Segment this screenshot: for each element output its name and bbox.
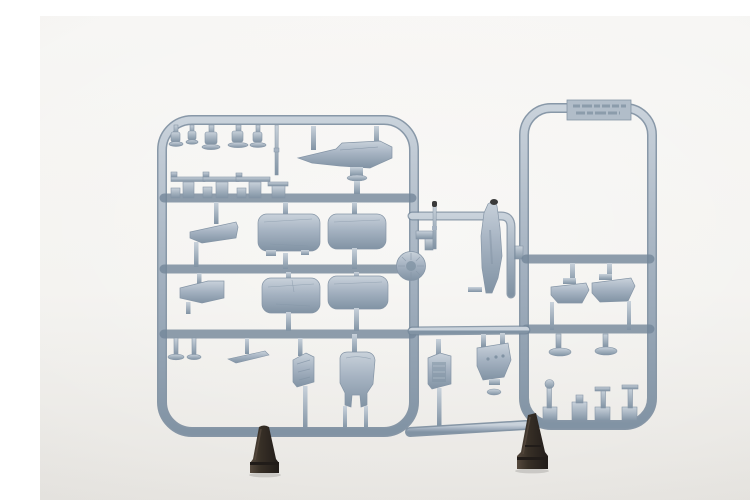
ball-post-part (543, 380, 557, 422)
nacelle-half-part (328, 272, 388, 331)
peg-part (228, 125, 248, 148)
parts-row1-small-pegs (169, 125, 266, 150)
nose-section-part (190, 202, 238, 267)
equipment-bay-part (428, 339, 451, 426)
t-post-part (622, 385, 638, 421)
wing-blade-part (228, 338, 269, 363)
nacelle-half-part (258, 202, 320, 269)
bottom-rail-parts (543, 380, 638, 422)
peg-part (202, 125, 220, 150)
parts-row4-small (168, 338, 201, 360)
label-plate (567, 100, 631, 120)
sprue-photo: Product photograph of a light blue-grey … (40, 16, 750, 500)
intake-duct-part (180, 273, 224, 314)
mushroom-peg-part (187, 338, 201, 360)
tank-half-part (592, 263, 635, 330)
mushroom-peg-part (168, 338, 184, 360)
seat-part (477, 333, 511, 395)
tank-half-part (550, 263, 589, 330)
tail-fairing-part (340, 334, 375, 429)
hub-parts (549, 334, 617, 356)
sprue-illustration (40, 16, 750, 500)
nacelle-half-part (262, 272, 320, 331)
wheel-hub-part (549, 334, 571, 356)
peg-part (186, 125, 198, 144)
wheel-disc-part (397, 252, 426, 281)
right-frame (512, 108, 652, 425)
probe-part (274, 125, 279, 175)
step-block-part (572, 395, 587, 421)
nacelle-half-part (328, 202, 386, 269)
cockpit-tub-part (293, 338, 314, 430)
peg-part (250, 125, 266, 147)
t-post-part (595, 387, 610, 421)
fuselage-spine-part (298, 126, 392, 194)
wheel-hub-part (595, 334, 617, 355)
